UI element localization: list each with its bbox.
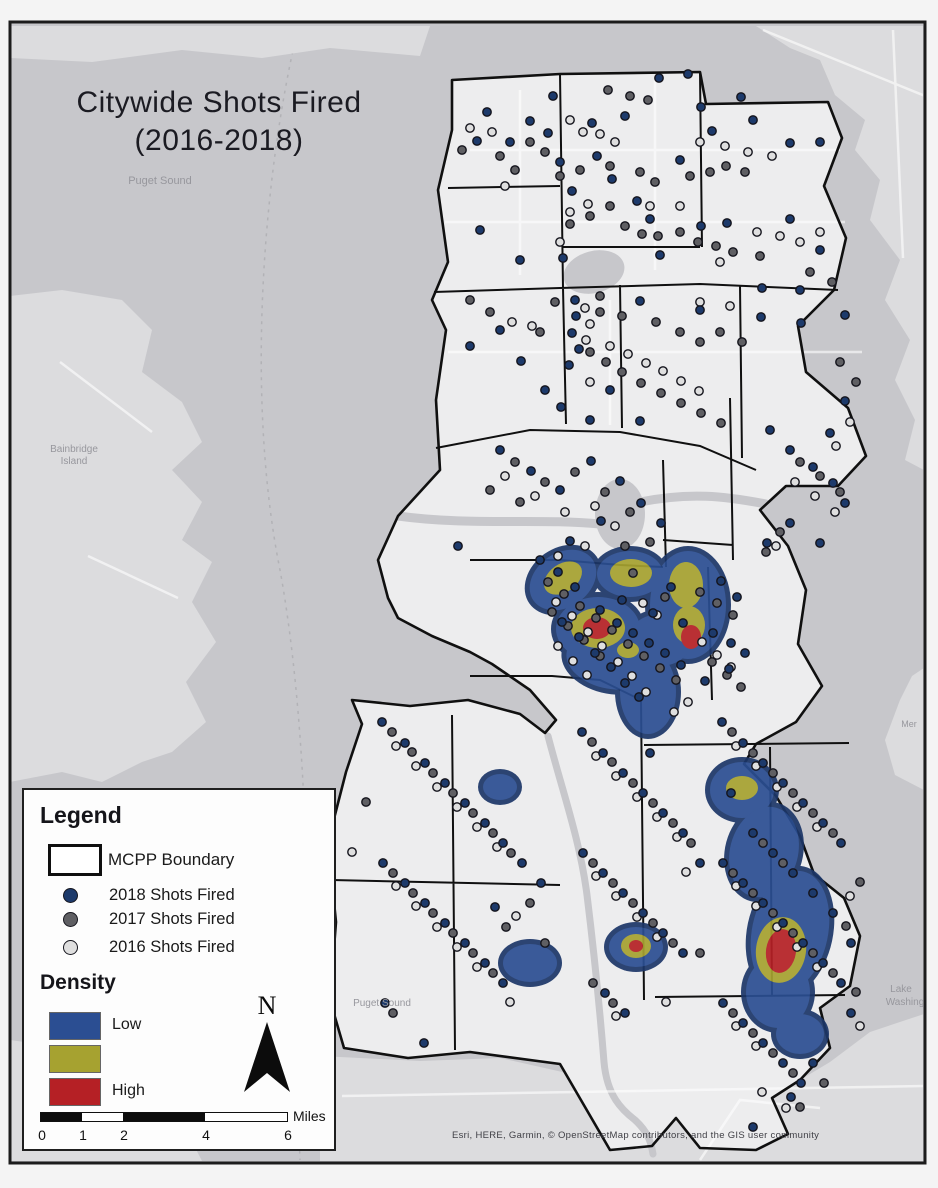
shot-dot-2018: [759, 759, 767, 767]
shot-dot-2016: [726, 302, 734, 310]
shot-dot-2016: [598, 642, 606, 650]
shot-dot-2017: [566, 220, 574, 228]
shot-dot-2018: [739, 879, 747, 887]
shot-dot-2017: [596, 308, 604, 316]
shot-dot-2017: [729, 248, 737, 256]
shot-dot-2017: [656, 664, 664, 672]
attribution-text: Esri, HERE, Garmin, © OpenStreetMap cont…: [452, 1130, 852, 1141]
scale-segment: [41, 1113, 82, 1121]
shot-dot-2017: [629, 779, 637, 787]
shot-dot-2018: [837, 839, 845, 847]
shot-dot-2017: [706, 168, 714, 176]
shot-dot-2017: [749, 889, 757, 897]
shot-dot-2018: [799, 939, 807, 947]
shot-dot-2016: [782, 1104, 790, 1112]
shot-dot-2018: [779, 779, 787, 787]
shot-dot-2018: [786, 215, 794, 223]
shot-dot-2017: [676, 328, 684, 336]
shot-dot-2017: [624, 640, 632, 648]
shot-dot-2017: [759, 839, 767, 847]
shot-dot-2018: [796, 286, 804, 294]
shot-dot-2016: [506, 998, 514, 1006]
shot-dot-2016: [677, 377, 685, 385]
shot-dot-2016: [581, 304, 589, 312]
shot-dot-2018: [786, 519, 794, 527]
shot-dot-2017: [589, 859, 597, 867]
shot-dot-2016: [624, 350, 632, 358]
shot-dot-2017: [729, 869, 737, 877]
shot-dot-2017: [694, 238, 702, 246]
shot-dot-2016: [586, 320, 594, 328]
shot-dot-2017: [789, 789, 797, 797]
shot-dot-2018: [739, 739, 747, 747]
shot-dot-2016: [566, 116, 574, 124]
shot-dot-2016: [348, 848, 356, 856]
shot-dot-2016: [659, 367, 667, 375]
shot-dot-2016: [512, 912, 520, 920]
shot-dot-2018: [556, 486, 564, 494]
legend-heading: Legend: [40, 802, 122, 829]
shot-dot-2017: [496, 152, 504, 160]
mcpp-boundary-swatch: [48, 844, 102, 876]
shot-dot-2018: [588, 119, 596, 127]
shot-dot-2017: [556, 172, 564, 180]
shot-dot-2018: [697, 222, 705, 230]
basemap-label: Puget Sound: [353, 998, 411, 1009]
shot-dot-2017: [586, 212, 594, 220]
shot-dot-2016: [758, 1088, 766, 1096]
shot-dot-2018: [621, 679, 629, 687]
scale-tick-4: 4: [196, 1127, 216, 1143]
shot-dot-2018: [572, 312, 580, 320]
shot-dot-2018: [789, 869, 797, 877]
shot-dot-2017: [609, 999, 617, 1007]
legend-label-2016: 2016 Shots Fired: [109, 938, 235, 957]
shot-dot-2018: [559, 254, 567, 262]
shot-dot-2018: [816, 246, 824, 254]
shot-dot-2018: [639, 789, 647, 797]
shot-dot-2017: [609, 879, 617, 887]
shot-dot-2017: [551, 298, 559, 306]
shot-dot-2018: [575, 345, 583, 353]
shot-dot-2017: [429, 769, 437, 777]
shot-dot-2017: [502, 923, 510, 931]
density-blob-low: [503, 944, 557, 982]
shot-dot-2017: [596, 292, 604, 300]
shot-dot-2017: [649, 799, 657, 807]
shot-dot-2018: [741, 649, 749, 657]
shot-dot-2018: [759, 899, 767, 907]
shot-dot-2018: [737, 93, 745, 101]
shot-dot-2018: [779, 1059, 787, 1067]
shot-dot-2017: [677, 399, 685, 407]
shot-dot-2017: [626, 508, 634, 516]
shot-dot-2017: [672, 676, 680, 684]
shot-dot-2016: [591, 502, 599, 510]
shot-dot-2016: [584, 628, 592, 636]
shot-dot-2018: [575, 633, 583, 641]
shot-dot-2017: [606, 162, 614, 170]
scale-segment: [205, 1113, 287, 1121]
shot-dot-2017: [836, 358, 844, 366]
shot-dot-2018: [613, 619, 621, 627]
shot-dot-2016: [433, 783, 441, 791]
shot-dot-2018: [491, 903, 499, 911]
shot-dot-2017: [809, 809, 817, 817]
shot-dot-2017: [469, 949, 477, 957]
density-heading: Density: [40, 971, 116, 995]
legend-panel: Legend MCPP Boundary 2018 Shots Fired 20…: [22, 788, 336, 1151]
shot-dot-2017: [856, 878, 864, 886]
shot-dot-2017: [576, 166, 584, 174]
shot-dot-2018: [749, 829, 757, 837]
shot-dot-2016: [392, 742, 400, 750]
shot-dot-2016: [473, 823, 481, 831]
shot-dot-2016: [642, 359, 650, 367]
shot-dot-2016: [612, 1012, 620, 1020]
shot-dot-2018: [841, 397, 849, 405]
map-title-line1: Citywide Shots Fired: [28, 84, 410, 122]
shot-dot-2018: [586, 416, 594, 424]
shot-dot-2018: [621, 1009, 629, 1017]
scale-tick-2: 2: [114, 1127, 134, 1143]
shot-dot-2018: [599, 869, 607, 877]
shot-dot-2018: [786, 139, 794, 147]
shot-dot-2017: [829, 829, 837, 837]
shot-dot-2017: [469, 809, 477, 817]
shot-dot-2016: [556, 238, 564, 246]
shot-dot-2016: [582, 336, 590, 344]
legend-dot-2016: [63, 940, 78, 955]
shot-dot-2018: [639, 909, 647, 917]
shot-dot-2017: [652, 318, 660, 326]
shot-dot-2016: [579, 128, 587, 136]
basemap-label: Puget Sound: [128, 175, 192, 187]
shot-dot-2016: [628, 672, 636, 680]
shot-dot-2017: [544, 578, 552, 586]
shot-dot-2018: [466, 342, 474, 350]
shot-dot-2017: [749, 749, 757, 757]
scale-unit-label: Miles: [293, 1108, 326, 1124]
shot-dot-2018: [718, 718, 726, 726]
basemap-label: Lake: [890, 984, 912, 995]
scale-segment: [82, 1113, 123, 1121]
shot-dot-2018: [829, 909, 837, 917]
north-arrow-label: N: [258, 991, 277, 1020]
shot-dot-2018: [591, 649, 599, 657]
shot-dot-2016: [676, 202, 684, 210]
shot-dot-2018: [708, 127, 716, 135]
shot-dot-2018: [481, 819, 489, 827]
shot-dot-2018: [544, 129, 552, 137]
shot-dot-2017: [696, 949, 704, 957]
shot-dot-2018: [797, 1079, 805, 1087]
legend-dot-2017: [63, 912, 78, 927]
shot-dot-2018: [473, 137, 481, 145]
basemap-label: Island: [61, 456, 88, 467]
shot-dot-2018: [441, 919, 449, 927]
shot-dot-2018: [476, 226, 484, 234]
shot-dot-2017: [769, 769, 777, 777]
shot-dot-2016: [453, 803, 461, 811]
shot-dot-2018: [527, 467, 535, 475]
shot-dot-2017: [629, 569, 637, 577]
shot-dot-2017: [687, 839, 695, 847]
shot-dot-2017: [511, 458, 519, 466]
shot-dot-2017: [507, 849, 515, 857]
shot-dot-2018: [571, 296, 579, 304]
shot-dot-2016: [670, 708, 678, 716]
shot-dot-2018: [565, 361, 573, 369]
shot-dot-2018: [646, 749, 654, 757]
shot-dot-2018: [757, 313, 765, 321]
shot-dot-2016: [531, 492, 539, 500]
shot-dot-2018: [679, 829, 687, 837]
shot-dot-2018: [679, 949, 687, 957]
shot-dot-2016: [583, 671, 591, 679]
shot-dot-2017: [789, 1069, 797, 1077]
shot-dot-2017: [644, 96, 652, 104]
shot-dot-2018: [719, 999, 727, 1007]
shot-dot-2018: [421, 899, 429, 907]
shot-dot-2018: [454, 542, 462, 550]
shot-dot-2017: [756, 252, 764, 260]
shot-dot-2017: [601, 488, 609, 496]
shot-dot-2017: [836, 488, 844, 496]
shot-dot-2016: [791, 478, 799, 486]
basemap-label: Washing: [886, 997, 925, 1008]
shot-dot-2016: [772, 542, 780, 550]
shot-dot-2017: [852, 988, 860, 996]
scale-segment: [123, 1113, 205, 1121]
shot-dot-2016: [584, 200, 592, 208]
shot-dot-2016: [796, 238, 804, 246]
density-swatch-low: [49, 1012, 101, 1040]
shot-dot-2018: [619, 889, 627, 897]
shot-dot-2018: [709, 629, 717, 637]
shot-dot-2018: [809, 1059, 817, 1067]
shot-dot-2017: [409, 889, 417, 897]
shot-dot-2017: [722, 162, 730, 170]
shot-dot-2017: [526, 138, 534, 146]
shot-dot-2018: [421, 759, 429, 767]
shot-dot-2018: [636, 417, 644, 425]
density-label-high: High: [112, 1082, 145, 1100]
shot-dot-2017: [586, 348, 594, 356]
shot-dot-2018: [719, 859, 727, 867]
shot-dot-2018: [549, 92, 557, 100]
shot-dot-2018: [461, 799, 469, 807]
shot-dot-2017: [842, 922, 850, 930]
shot-dot-2018: [629, 629, 637, 637]
shot-dot-2018: [717, 577, 725, 585]
shot-dot-2018: [541, 386, 549, 394]
shot-dot-2018: [517, 357, 525, 365]
shot-dot-2017: [651, 178, 659, 186]
shot-dot-2016: [816, 228, 824, 236]
shot-dot-2018: [481, 959, 489, 967]
shot-dot-2017: [716, 328, 724, 336]
shot-dot-2018: [816, 138, 824, 146]
shot-dot-2017: [541, 478, 549, 486]
shot-dot-2016: [768, 152, 776, 160]
shot-dot-2018: [657, 519, 665, 527]
shot-dot-2017: [796, 1103, 804, 1111]
shot-dot-2017: [776, 528, 784, 536]
shot-dot-2018: [599, 749, 607, 757]
shot-dot-2017: [737, 683, 745, 691]
shot-dot-2018: [826, 429, 834, 437]
shot-dot-2016: [501, 472, 509, 480]
shot-dot-2017: [669, 819, 677, 827]
shot-dot-2016: [433, 923, 441, 931]
shot-dot-2018: [809, 889, 817, 897]
shot-dot-2017: [738, 338, 746, 346]
shot-dot-2018: [633, 197, 641, 205]
scale-tick-6: 6: [278, 1127, 298, 1143]
scale-tick-1: 1: [73, 1127, 93, 1143]
shot-dot-2017: [789, 929, 797, 937]
shot-dot-2017: [548, 608, 556, 616]
shot-dot-2017: [489, 969, 497, 977]
shot-dot-2016: [561, 508, 569, 516]
density-blob-high: [681, 625, 701, 649]
shot-dot-2017: [820, 1079, 828, 1087]
shot-dot-2018: [667, 583, 675, 591]
shot-dot-2018: [441, 779, 449, 787]
shot-dot-2016: [832, 442, 840, 450]
shot-dot-2018: [483, 108, 491, 116]
shot-dot-2018: [496, 446, 504, 454]
shot-dot-2018: [759, 1039, 767, 1047]
basemap-label: Bainbridge: [50, 444, 98, 455]
shot-dot-2018: [536, 556, 544, 564]
shot-dot-2018: [733, 593, 741, 601]
shot-dot-2017: [388, 728, 396, 736]
shot-dot-2018: [499, 839, 507, 847]
shot-dot-2017: [618, 368, 626, 376]
shot-dot-2018: [769, 849, 777, 857]
shot-dot-2018: [659, 929, 667, 937]
shot-dot-2017: [604, 86, 612, 94]
shot-dot-2017: [717, 419, 725, 427]
shot-dot-2017: [541, 939, 549, 947]
shot-dot-2017: [389, 1009, 397, 1017]
shot-dot-2018: [829, 479, 837, 487]
shot-dot-2018: [766, 426, 774, 434]
shot-dot-2016: [488, 128, 496, 136]
shot-dot-2018: [420, 1039, 428, 1047]
shot-dot-2016: [568, 612, 576, 620]
shot-dot-2017: [729, 1009, 737, 1017]
shot-dot-2018: [645, 639, 653, 647]
north-arrow-glyph: [244, 1022, 290, 1092]
shot-dot-2017: [511, 166, 519, 174]
shot-dot-2016: [753, 228, 761, 236]
shot-dot-2017: [654, 232, 662, 240]
shot-dot-2016: [684, 698, 692, 706]
shot-dot-2018: [786, 446, 794, 454]
shot-dot-2018: [749, 116, 757, 124]
shot-dot-2018: [558, 618, 566, 626]
shot-dot-2018: [616, 477, 624, 485]
shot-dot-2018: [723, 219, 731, 227]
shot-dot-2018: [556, 158, 564, 166]
shot-dot-2018: [779, 919, 787, 927]
shot-dot-2017: [769, 909, 777, 917]
density-blob-low: [483, 774, 517, 800]
shot-dot-2017: [806, 268, 814, 276]
shot-dot-2016: [508, 318, 516, 326]
shot-dot-2016: [639, 599, 647, 607]
north-arrow: N: [232, 988, 302, 1100]
shot-dot-2017: [466, 296, 474, 304]
shot-dot-2018: [797, 319, 805, 327]
shot-dot-2018: [401, 879, 409, 887]
shot-dot-2018: [621, 112, 629, 120]
shot-dot-2018: [566, 537, 574, 545]
shot-dot-2018: [701, 677, 709, 685]
shot-dot-2017: [638, 230, 646, 238]
shot-dot-2016: [662, 998, 670, 1006]
shot-dot-2018: [847, 1009, 855, 1017]
shot-dot-2017: [728, 728, 736, 736]
shot-dot-2016: [596, 130, 604, 138]
shot-dot-2017: [606, 202, 614, 210]
shot-dot-2018: [619, 769, 627, 777]
shot-dot-2016: [552, 598, 560, 606]
shot-dot-2018: [649, 609, 657, 617]
shot-dot-2016: [744, 148, 752, 156]
shot-dot-2018: [725, 665, 733, 673]
shot-dot-2017: [713, 599, 721, 607]
density-swatch-high: [49, 1078, 101, 1106]
legend-label-2018: 2018 Shots Fired: [109, 886, 235, 905]
shot-dot-2017: [779, 859, 787, 867]
shot-dot-2017: [686, 172, 694, 180]
density-blob-high: [629, 940, 643, 952]
shot-dot-2018: [739, 1019, 747, 1027]
shot-dot-2018: [596, 606, 604, 614]
shot-dot-2016: [412, 762, 420, 770]
shot-dot-2016: [646, 202, 654, 210]
shot-dot-2017: [489, 829, 497, 837]
shot-dot-2018: [597, 517, 605, 525]
shot-dot-2017: [816, 472, 824, 480]
shot-dot-2017: [608, 758, 616, 766]
shot-dot-2016: [606, 342, 614, 350]
scale-tick-0: 0: [32, 1127, 52, 1143]
shot-dot-2018: [618, 596, 626, 604]
shot-dot-2016: [392, 882, 400, 890]
shot-dot-2016: [698, 638, 706, 646]
shot-dot-2018: [816, 539, 824, 547]
shot-dot-2017: [769, 1049, 777, 1057]
shot-dot-2017: [661, 593, 669, 601]
shot-dot-2017: [729, 611, 737, 619]
shot-dot-2018: [537, 879, 545, 887]
shot-dot-2016: [554, 552, 562, 560]
density-swatch-mid: [49, 1045, 101, 1073]
map-title: Citywide Shots Fired (2016-2018): [28, 84, 410, 160]
shot-dot-2018: [819, 959, 827, 967]
shot-dot-2017: [362, 798, 370, 806]
basemap-label: Mer: [901, 719, 917, 729]
shot-dot-2017: [697, 409, 705, 417]
shot-dot-2017: [602, 358, 610, 366]
shot-dot-2017: [828, 278, 836, 286]
shot-dot-2018: [506, 138, 514, 146]
